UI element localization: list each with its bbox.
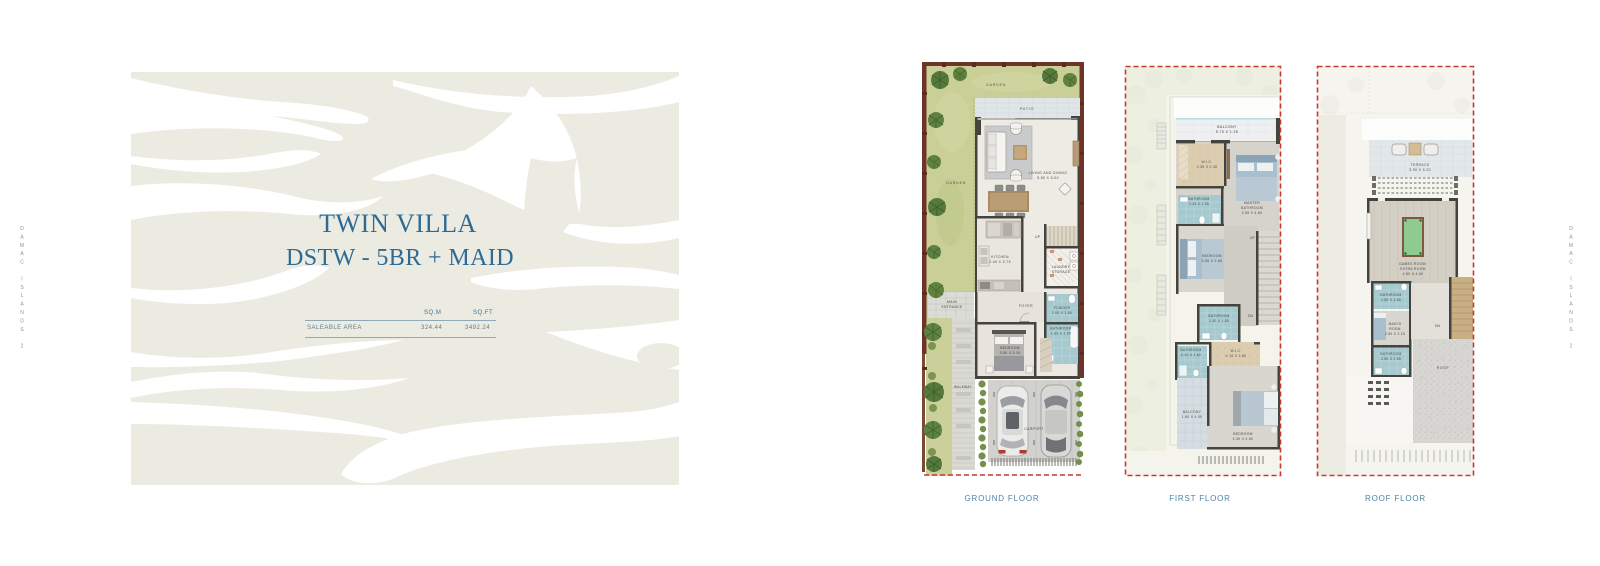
svg-text:ENTRANCE: ENTRANCE <box>941 305 962 309</box>
svg-text:KITCHEN: KITCHEN <box>991 255 1009 259</box>
svg-text:BATHROOM: BATHROOM <box>1050 327 1071 331</box>
svg-text:BATHROOM: BATHROOM <box>1188 197 1209 201</box>
svg-text:CARPORT: CARPORT <box>1024 427 1043 431</box>
svg-text:2.50 X 1.60: 2.50 X 1.60 <box>1381 298 1401 302</box>
svg-text:POWDER: POWDER <box>1054 306 1071 310</box>
svg-text:MAIN: MAIN <box>947 300 957 304</box>
svg-text:EXTRA ROOM: EXTRA ROOM <box>1400 267 1426 271</box>
svg-text:2.35 X 2.05: 2.35 X 2.05 <box>1189 202 1209 206</box>
svg-text:W.I.C.: W.I.C. <box>1201 160 1212 164</box>
svg-text:MASTER: MASTER <box>1244 201 1260 205</box>
svg-text:2.50 X 1.55: 2.50 X 1.55 <box>1381 357 1401 361</box>
svg-text:WALKWAY: WALKWAY <box>954 385 972 389</box>
svg-text:ROOM: ROOM <box>1389 327 1400 331</box>
svg-text:3.55 X 4.60: 3.55 X 4.60 <box>1242 211 1263 215</box>
svg-text:3.50 X 3.10: 3.50 X 3.10 <box>1000 351 1021 355</box>
svg-text:2.40 X 3.75: 2.40 X 3.75 <box>989 260 1011 264</box>
svg-text:BATHROOM: BATHROOM <box>1380 293 1401 297</box>
svg-text:BATHROOM: BATHROOM <box>1241 206 1263 210</box>
svg-text:LAUNDRY: LAUNDRY <box>1052 265 1071 269</box>
svg-text:STORAGE: STORAGE <box>1052 270 1071 274</box>
svg-text:1.60 X 2.50: 1.60 X 2.50 <box>1051 332 1071 336</box>
svg-text:BATHROOM: BATHROOM <box>1208 314 1229 318</box>
svg-text:LIVING AND DINING: LIVING AND DINING <box>1029 171 1068 175</box>
svg-text:BEDROOM: BEDROOM <box>1000 346 1020 350</box>
svg-text:W.I.C.: W.I.C. <box>1230 349 1241 353</box>
svg-text:ROOF: ROOF <box>1437 366 1450 370</box>
svg-text:DN.: DN. <box>1248 314 1254 318</box>
svg-text:UP: UP <box>1035 235 1041 239</box>
svg-text:UP: UP <box>1250 236 1255 240</box>
svg-text:3.90 X 3.20: 3.90 X 3.20 <box>1409 168 1431 172</box>
svg-text:2.35 X 2.40: 2.35 X 2.40 <box>1197 165 1218 169</box>
svg-text:1.60 X 4.00: 1.60 X 4.00 <box>1182 415 1203 419</box>
svg-text:TERRACE: TERRACE <box>1410 163 1429 167</box>
svg-text:MAID'S: MAID'S <box>1389 322 1402 326</box>
svg-text:BEDROOM: BEDROOM <box>1233 432 1253 436</box>
svg-text:2.50 X 2.15: 2.50 X 2.15 <box>1385 332 1405 336</box>
svg-text:4.30 X 4.50: 4.30 X 4.50 <box>1233 437 1254 441</box>
svg-text:GAMES ROOM:: GAMES ROOM: <box>1399 262 1427 266</box>
svg-text:GARDEN: GARDEN <box>986 83 1006 87</box>
svg-text:BATHROOM: BATHROOM <box>1180 348 1201 352</box>
svg-text:5.80 X 6.00: 5.80 X 6.00 <box>1037 176 1059 180</box>
svg-text:4.60 X 4.60: 4.60 X 4.60 <box>1403 272 1424 276</box>
svg-text:2.10 X 1.60: 2.10 X 1.60 <box>1181 353 1201 357</box>
svg-text:BALCONY: BALCONY <box>1217 125 1237 129</box>
svg-text:5.70 X 1.25: 5.70 X 1.25 <box>1216 130 1238 134</box>
svg-text:4.10 X 1.80: 4.10 X 1.80 <box>1226 354 1247 358</box>
svg-text:FOYER: FOYER <box>1019 304 1033 308</box>
svg-text:DN.: DN. <box>1435 324 1441 328</box>
svg-text:BATHROOM: BATHROOM <box>1380 352 1401 356</box>
svg-text:2.00 X 1.55: 2.00 X 1.55 <box>1052 311 1072 315</box>
svg-text:BEDROOM: BEDROOM <box>1202 254 1222 258</box>
svg-text:2.30 X 1.80: 2.30 X 1.80 <box>1209 319 1229 323</box>
svg-text:GARDEN: GARDEN <box>946 181 966 185</box>
svg-text:BALCONY: BALCONY <box>1183 410 1202 414</box>
svg-text:3.55 X 2.85: 3.55 X 2.85 <box>1202 259 1223 263</box>
svg-text:PATIO: PATIO <box>1020 107 1034 111</box>
